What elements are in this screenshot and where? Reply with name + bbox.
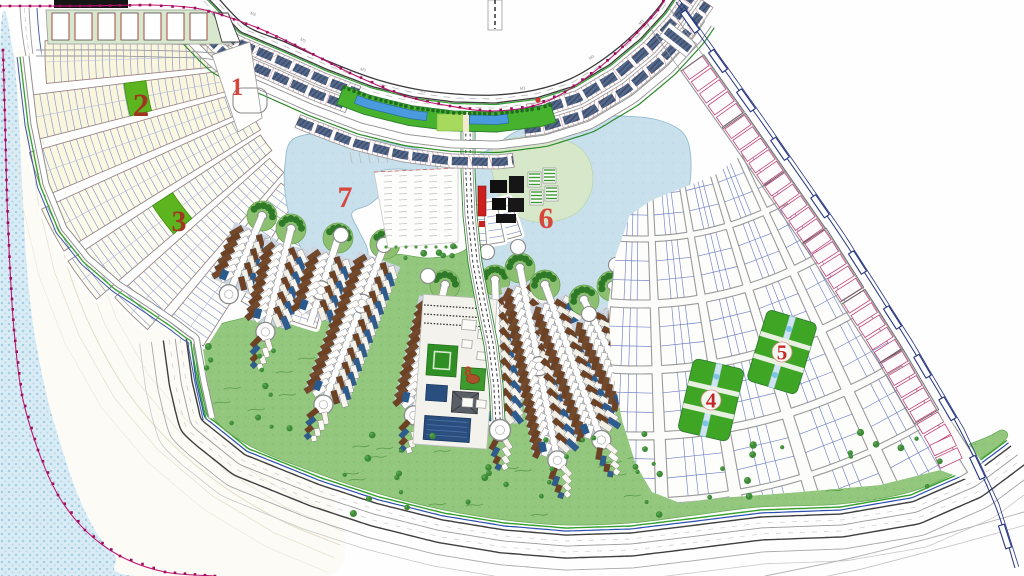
svg-text:6: 6: [539, 202, 554, 235]
svg-text:2: 2: [133, 88, 150, 124]
svg-text:8: 8: [464, 364, 472, 380]
svg-text:3: 3: [172, 205, 187, 238]
svg-text:5: 5: [777, 341, 788, 365]
svg-text:1: 1: [231, 74, 244, 101]
svg-text:7: 7: [338, 181, 353, 214]
svg-text:4: 4: [706, 389, 717, 413]
